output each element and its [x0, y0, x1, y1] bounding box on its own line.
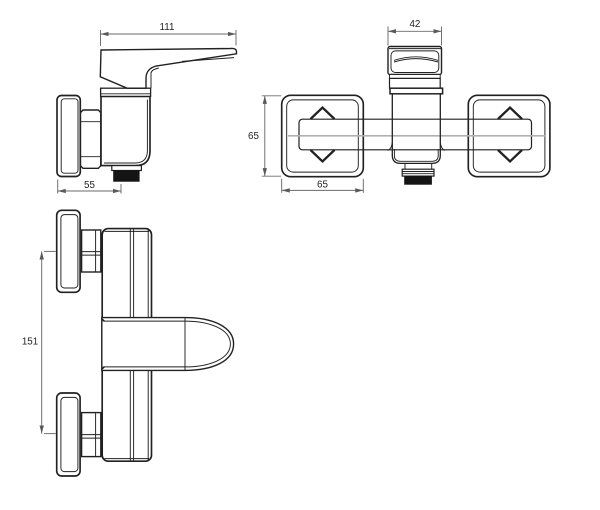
- front-view: 42: [248, 19, 550, 193]
- dim-label-55: 55: [84, 180, 95, 191]
- outlet-gasket: [114, 171, 140, 182]
- dim-label-151: 151: [22, 336, 38, 347]
- hex-nut-upper: [82, 230, 101, 272]
- body-front: [388, 94, 445, 164]
- lever-handle-side: [100, 48, 236, 88]
- dimension-65-horizontal: 65: [282, 179, 364, 193]
- dimension-42: 42: [388, 19, 442, 46]
- handle-front: [388, 47, 442, 75]
- dim-label-111: 111: [160, 22, 175, 33]
- technical-drawing: 111: [0, 0, 600, 510]
- cartridge-collar: [101, 88, 151, 96]
- hex-nut: [81, 110, 101, 168]
- shower-outlet-side: [112, 166, 142, 182]
- dimension-65-vertical: 65: [248, 96, 281, 176]
- side-view: 111: [57, 22, 237, 194]
- shower-outlet-front: [402, 163, 434, 184]
- outlet-gasket: [405, 176, 432, 184]
- wall-flange-upper: [57, 210, 80, 292]
- dim-label-65-height: 65: [248, 131, 259, 142]
- wall-flange: [57, 96, 80, 177]
- dimension-151: 151: [22, 251, 56, 433]
- handle-base-front: [390, 75, 443, 94]
- wall-flange-lower: [57, 393, 80, 476]
- lever-handle-top: [102, 318, 234, 371]
- dimension-55: 55: [58, 180, 121, 194]
- hex-nut-lower: [82, 413, 101, 457]
- top-view: 151: [22, 210, 234, 476]
- dim-label-65-width: 65: [317, 179, 328, 190]
- valve-body: [101, 96, 150, 165]
- dim-label-42: 42: [409, 19, 420, 30]
- technical-drawing-page: 111: [0, 0, 600, 510]
- dimension-111: 111: [101, 22, 237, 46]
